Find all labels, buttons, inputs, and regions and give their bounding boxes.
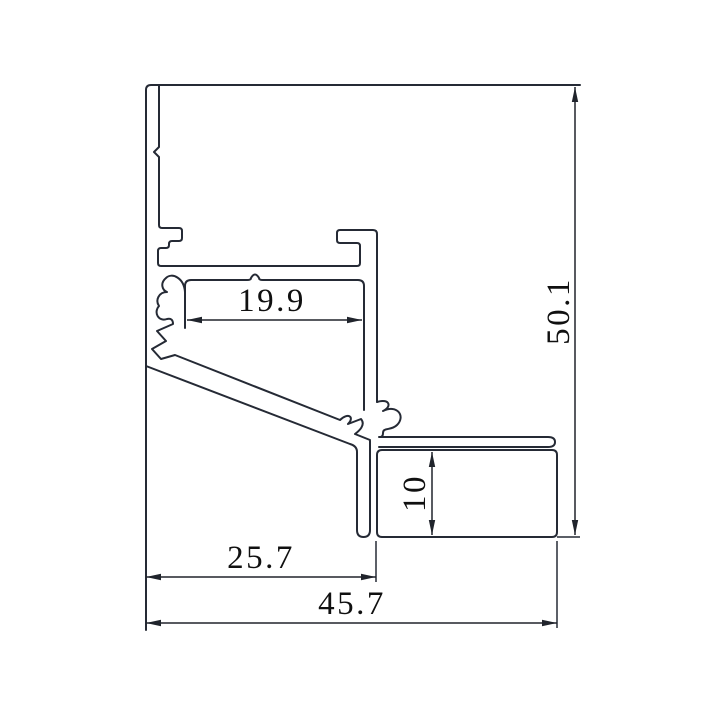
dim-slot-height-arrow-top [429, 452, 435, 467]
dim-overall-height-arrow-top [572, 87, 578, 102]
dim-overall-width-label: 45.7 [318, 586, 386, 622]
dim-overall-width: 45.7 [146, 586, 557, 626]
left-wall-inner-and-channel-outline [154, 85, 377, 402]
dim-left-width-label: 25.7 [227, 540, 295, 576]
dim-overall-width-arrow-right [542, 620, 557, 626]
dim-overall-width-arrow-left [146, 620, 161, 626]
dim-overall-height-arrow-bottom [572, 520, 578, 535]
dim-slot-height-arrow-bottom [429, 520, 435, 535]
mounting-arm [379, 437, 555, 447]
profile-technical-drawing: 19.9 50.1 10 25.7 45.7 [0, 0, 720, 720]
dim-overall-height-label: 50.1 [541, 277, 577, 345]
dim-overall-height: 50.1 [541, 87, 578, 535]
profile-geometry [146, 85, 580, 630]
right-wall-clip-outline [377, 401, 401, 437]
dim-left-width: 25.7 [146, 540, 376, 580]
dim-slot-height: 10 [397, 452, 435, 535]
dim-cavity-width-arrow-right [347, 317, 362, 323]
dim-cavity-width-label: 19.9 [238, 283, 306, 319]
dim-left-width-arrow-left [146, 574, 161, 580]
outer-slope-and-lower-wall [146, 366, 370, 537]
dim-cavity-width: 19.9 [187, 283, 362, 323]
dim-left-width-arrow-right [361, 574, 376, 580]
dim-cavity-width-arrow-left [187, 317, 202, 323]
dim-slot-height-label: 10 [397, 474, 433, 512]
